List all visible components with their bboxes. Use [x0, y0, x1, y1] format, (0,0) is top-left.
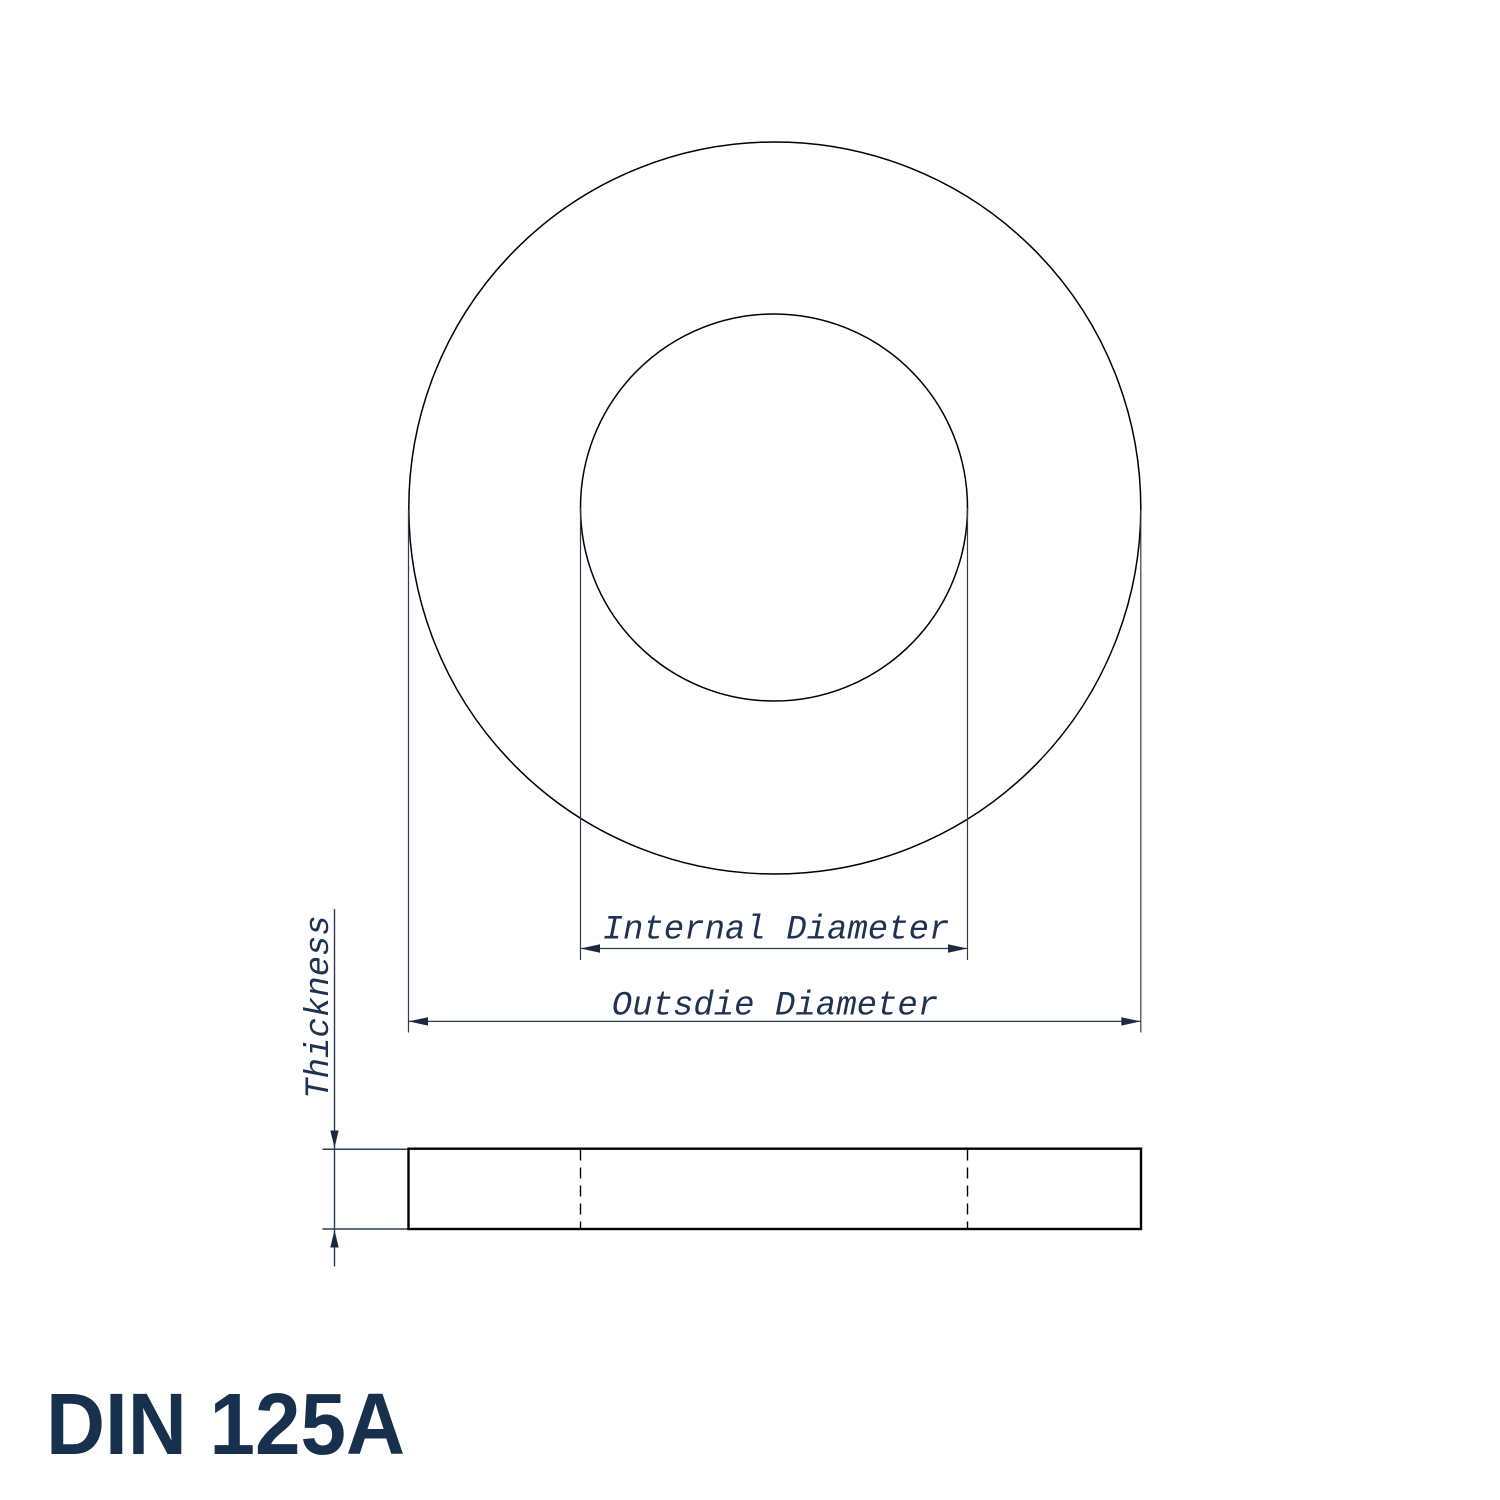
svg-text:Outsdie Diameter: Outsdie Diameter: [612, 988, 938, 1026]
svg-text:Thickness: Thickness: [301, 915, 339, 1099]
svg-text:Internal Diameter: Internal Diameter: [603, 912, 950, 950]
svg-text:DIN 125A: DIN 125A: [46, 1376, 405, 1473]
